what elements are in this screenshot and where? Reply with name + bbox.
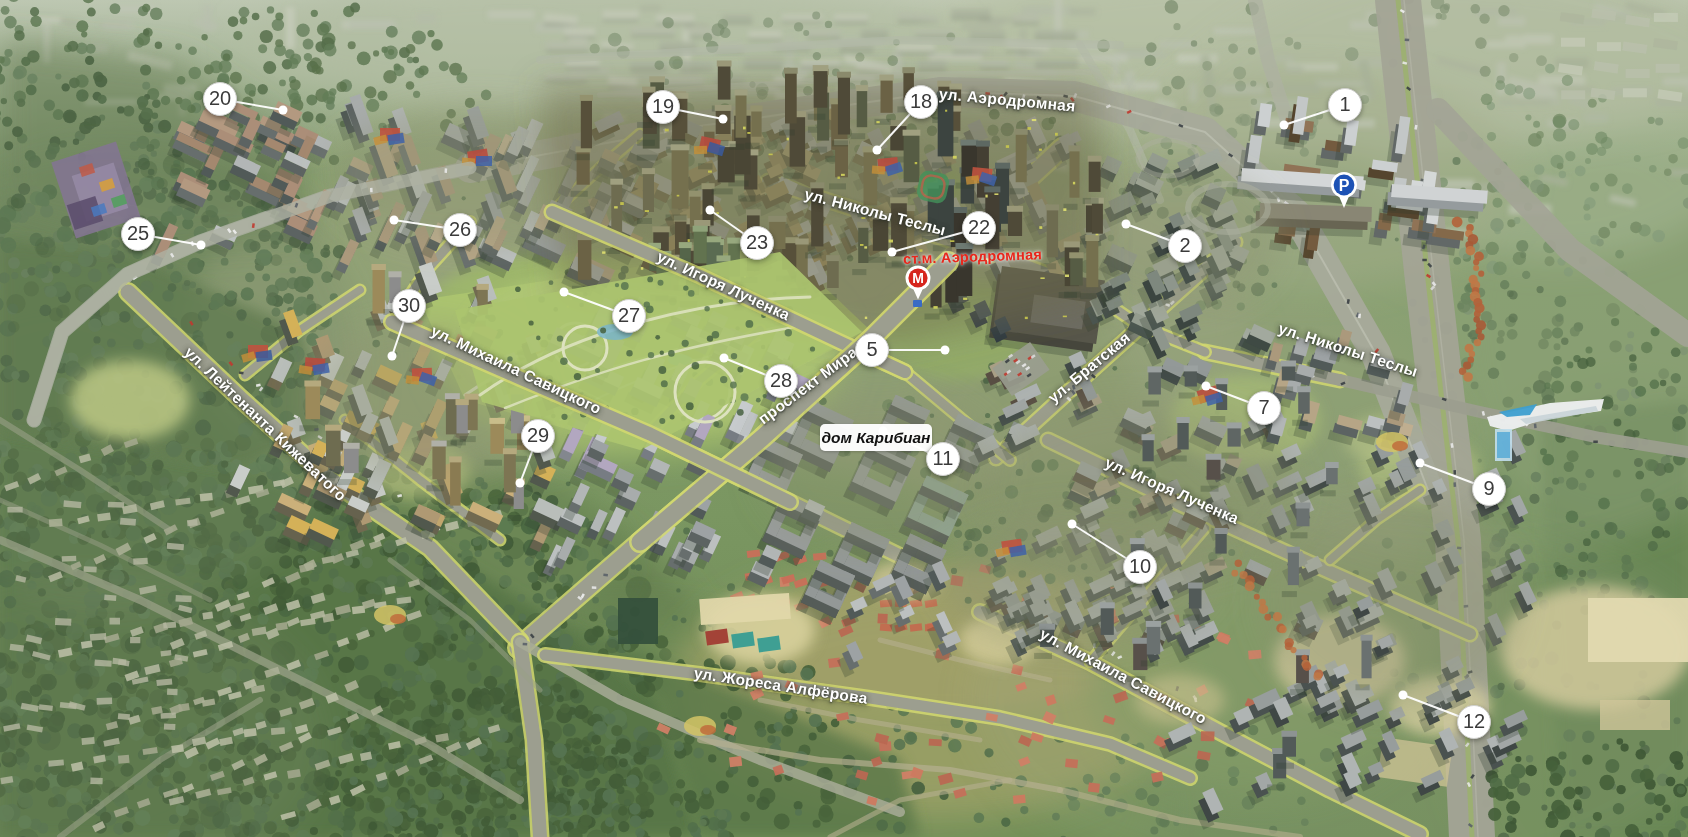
svg-text:M: M bbox=[912, 270, 924, 286]
svg-text:P: P bbox=[1339, 177, 1350, 194]
